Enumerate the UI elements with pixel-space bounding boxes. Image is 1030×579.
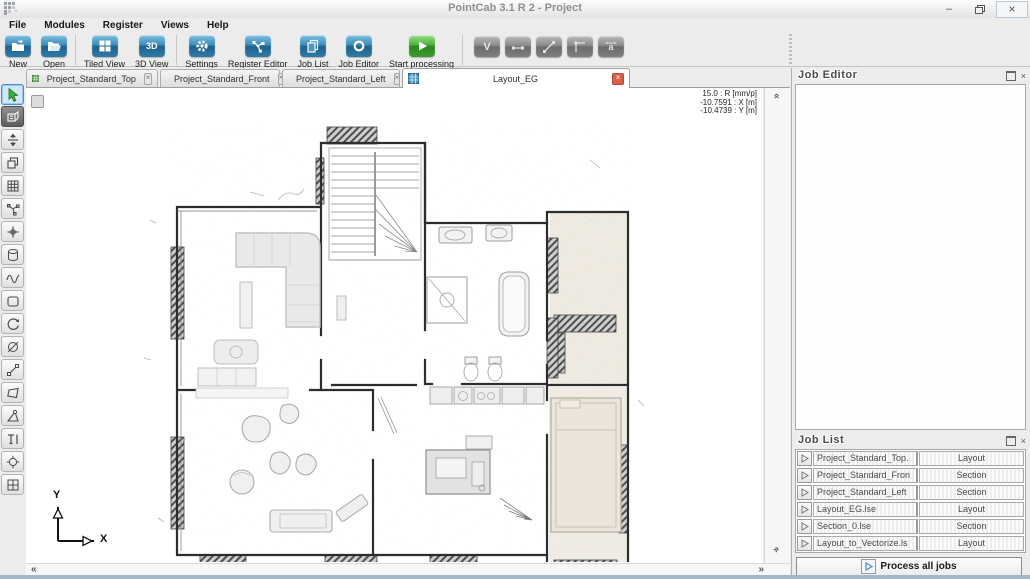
settings-gear-icon [194, 38, 210, 54]
square-cross-icon [5, 477, 21, 493]
register-editor-icon [250, 38, 266, 54]
floorplan-pointcloud [130, 100, 670, 562]
text-tool-button[interactable] [1, 428, 24, 449]
cylinder-tool-button[interactable] [1, 244, 24, 265]
job-row[interactable]: Layout_EG.lse Layout [797, 502, 1024, 518]
open-button[interactable]: Open [36, 34, 72, 70]
3d-view-button[interactable]: 3D 3D View [130, 34, 173, 70]
window-bottom-border [0, 575, 1030, 579]
job-play-button[interactable] [797, 519, 812, 534]
tiled-view-icon [97, 38, 113, 54]
restore-icon [975, 5, 984, 13]
toolbar-handle [789, 34, 792, 64]
tab-close-icon[interactable]: × [144, 73, 152, 85]
view-tabbar: Project_Standard_Top × Project_Standard_… [26, 68, 790, 88]
process-all-jobs-button[interactable]: Process all jobs [796, 557, 1022, 576]
job-name-field[interactable]: Layout_to_Vectorize.ls [813, 536, 918, 551]
job-type-field[interactable]: Section [919, 485, 1024, 500]
start-processing-button[interactable]: Start processing [384, 34, 459, 70]
dock-divider [791, 68, 792, 575]
sketch-tool-group: V a [474, 36, 624, 57]
plane-tool-button[interactable] [1, 290, 24, 311]
expand-corner-icon[interactable]: » [771, 544, 782, 555]
angle-icon [5, 408, 21, 424]
tab-project-standard-top[interactable]: Project_Standard_Top × [26, 69, 158, 87]
job-list-icon [305, 38, 321, 54]
tab-project-standard-front[interactable]: Project_Standard_Front × [160, 69, 280, 87]
area-tool-button[interactable] [1, 382, 24, 403]
compass-tool-button[interactable] [1, 336, 24, 357]
tab-project-standard-left[interactable]: Project_Standard_Left × [282, 69, 400, 87]
move-tool-button[interactable] [1, 221, 24, 242]
register-editor-button[interactable]: Register Editor [223, 34, 293, 70]
viewer-canvas[interactable]: 15.0 : R [mm/p] -10.7591 : X [m] -10.473… [26, 88, 763, 563]
window-title: PointCab 3.1 R 2 - Project [0, 2, 1030, 14]
canvas-anchor-handle[interactable] [31, 95, 44, 108]
tool-rail [0, 68, 26, 575]
axis-indicator: Y X [44, 493, 114, 553]
menu-modules[interactable]: Modules [35, 20, 94, 31]
layout-tab-icon [32, 73, 39, 84]
wave-tool-button[interactable] [1, 267, 24, 288]
tiled-view-button[interactable]: Tiled View [79, 34, 130, 70]
collapse-right-icon[interactable]: » [758, 565, 764, 575]
title-bar: PointCab 3.1 R 2 - Project – × [0, 0, 1030, 19]
grid-tool-button[interactable] [1, 175, 24, 196]
play-outline-icon [800, 488, 809, 497]
job-play-button[interactable] [797, 502, 812, 517]
job-row[interactable]: Project_Standard_Fron Section [797, 468, 1024, 484]
job-play-button[interactable] [797, 451, 812, 466]
vector-tool-button[interactable] [1, 198, 24, 219]
open-icon [46, 38, 62, 54]
menu-register[interactable]: Register [94, 20, 152, 31]
polyline-tool-button[interactable] [536, 36, 562, 57]
new-button[interactable]: New [0, 34, 36, 70]
toolbar-separator [176, 35, 177, 65]
tab-close-icon[interactable]: × [612, 73, 624, 85]
axis-y-label: Y [53, 489, 60, 501]
minimize-button[interactable]: – [936, 2, 962, 17]
flatten-icon [5, 132, 21, 148]
job-play-button[interactable] [797, 468, 812, 483]
tab-layout-eg[interactable]: Layout_EG × [402, 68, 630, 88]
collapse-left-icon[interactable]: « [31, 565, 37, 575]
job-row[interactable]: Project_Standard_Top. Layout [797, 451, 1024, 467]
vectorizer-tool-button[interactable]: V [474, 36, 500, 57]
job-name-field[interactable]: Section_0.lse [813, 519, 918, 534]
job-type-field[interactable]: Section [919, 519, 1024, 534]
job-type-field[interactable]: Layout [919, 502, 1024, 517]
toolbar-separator [75, 35, 76, 65]
cylinder-icon [5, 247, 21, 263]
layout-tab-icon-active [408, 73, 419, 84]
distance-tool-button[interactable] [1, 359, 24, 380]
right-collapsed-strip[interactable]: « » [764, 88, 790, 563]
play-outline-icon [800, 471, 809, 480]
pointcab-window: PointCab 3.1 R 2 - Project – × File Modu… [0, 0, 1030, 579]
close-button[interactable]: × [996, 1, 1028, 18]
grid-icon [5, 178, 21, 194]
select-tool-button[interactable] [1, 84, 24, 105]
bottom-collapsed-strip[interactable]: « » [26, 563, 790, 575]
job-editor-float-icon[interactable] [1006, 71, 1016, 81]
job-list-title: Job List [798, 434, 844, 446]
new-icon [10, 38, 26, 54]
crop-tool-button[interactable] [1, 474, 24, 495]
job-list-float-icon[interactable] [1006, 436, 1016, 446]
polygon-icon [5, 385, 21, 401]
job-play-button[interactable] [797, 485, 812, 500]
rounded-rect-icon [5, 293, 21, 309]
wave-icon [5, 270, 21, 286]
play-icon [414, 38, 430, 54]
position-icon [5, 454, 21, 470]
layers-icon [5, 155, 21, 171]
play-outline-icon [800, 539, 809, 548]
rotate-icon [5, 316, 21, 332]
job-editor-panel[interactable] [795, 84, 1026, 430]
settings-button[interactable]: Settings [180, 34, 223, 70]
job-editor-icon [351, 38, 367, 54]
section-tool-button[interactable] [1, 106, 24, 127]
move-crosshair-icon [5, 224, 21, 240]
job-name-field[interactable]: Project_Standard_Fron [813, 468, 918, 483]
restore-button[interactable] [966, 2, 992, 17]
text-icon [5, 431, 21, 447]
job-editor-title: Job Editor [798, 69, 857, 81]
job-name-field[interactable]: Project_Standard_Left [813, 485, 918, 500]
menu-file[interactable]: File [0, 20, 35, 31]
menu-views[interactable]: Views [152, 20, 198, 31]
job-editor-button[interactable]: Job Editor [333, 34, 384, 70]
play-outline-icon [800, 505, 809, 514]
job-list-panel: Project_Standard_Top. Layout Project_Sta… [795, 449, 1026, 553]
job-row[interactable]: Layout_to_Vectorize.ls Layout [797, 536, 1024, 552]
job-type-field[interactable]: Layout [919, 536, 1024, 551]
main-toolbar: New Open Tiled View 3D 3D View Settings … [0, 33, 1030, 67]
corner-icon [572, 39, 588, 55]
vector-icon [5, 201, 21, 217]
line-tool-button[interactable] [505, 36, 531, 57]
dimension-tool-button[interactable]: a [598, 36, 624, 57]
point-tool-button[interactable] [1, 451, 24, 472]
line-icon [510, 39, 526, 55]
job-type-field[interactable]: Layout [919, 451, 1024, 466]
distance-line-icon [5, 362, 21, 378]
menu-bar: File Modules Register Views Help [0, 18, 1030, 33]
job-editor-close-icon[interactable]: × [1021, 72, 1026, 81]
angle-tool-button[interactable] [1, 405, 24, 426]
job-play-button[interactable] [797, 536, 812, 551]
coordinate-readout: 15.0 : R [mm/p] -10.7591 : X [m] -10.473… [700, 90, 757, 116]
job-type-field[interactable]: Section [919, 468, 1024, 483]
cursor-icon [5, 87, 21, 103]
3d-view-icon: 3D [146, 41, 158, 51]
right-dock: Job Editor × Job List × Project_Standard… [793, 68, 1030, 575]
rotate-tool-button[interactable] [1, 313, 24, 334]
job-list-button[interactable]: Job List [292, 34, 333, 70]
play-outline-icon [800, 522, 809, 531]
section-icon [5, 109, 21, 125]
layers-tool-button[interactable] [1, 152, 24, 173]
menu-help[interactable]: Help [198, 20, 238, 31]
job-row[interactable]: Section_0.lse Section [797, 519, 1024, 535]
job-name-field[interactable]: Project_Standard_Top. [813, 451, 918, 466]
process-play-icon [861, 559, 876, 574]
job-row[interactable]: Project_Standard_Left Section [797, 485, 1024, 501]
compass-icon [5, 339, 21, 355]
job-name-field[interactable]: Layout_EG.lse [813, 502, 918, 517]
tab-close-icon[interactable]: × [394, 73, 401, 85]
flatten-tool-button[interactable] [1, 129, 24, 150]
diagonal-line-icon [541, 39, 557, 55]
play-outline-icon [800, 454, 809, 463]
expand-up-icon[interactable]: « [771, 93, 781, 99]
axis-x-label: X [100, 533, 107, 545]
corner-tool-button[interactable] [567, 36, 593, 57]
coord-y: -10.4739 : Y [m] [700, 107, 757, 116]
job-list-close-icon[interactable]: × [1021, 437, 1026, 446]
toolbar-separator [462, 35, 463, 65]
